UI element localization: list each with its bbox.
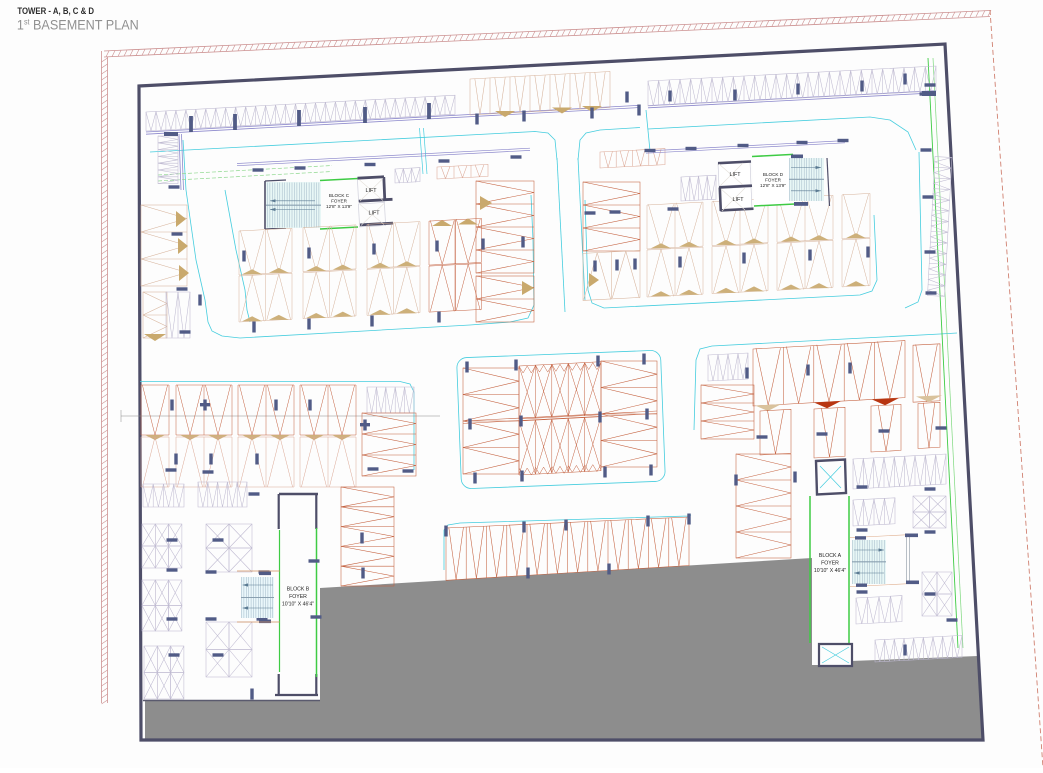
svg-text:1st BASEMENT PLAN: 1st BASEMENT PLAN (17, 17, 139, 33)
svg-text:FOYER: FOYER (289, 594, 307, 600)
svg-text:BLOCK B: BLOCK B (287, 587, 310, 593)
svg-text:FOYER: FOYER (331, 199, 348, 204)
svg-text:FOYER: FOYER (821, 561, 839, 567)
svg-text:LIFT: LIFT (365, 188, 377, 194)
svg-text:12'8" X 13'9": 12'8" X 13'9" (760, 183, 786, 188)
svg-text:FOYER: FOYER (765, 178, 782, 183)
svg-text:BLOCK A: BLOCK A (819, 553, 842, 559)
svg-text:LIFT: LIFT (732, 197, 744, 203)
svg-text:10'10" X 46'4": 10'10" X 46'4" (814, 568, 846, 574)
svg-text:BLOCK C: BLOCK C (329, 193, 350, 198)
svg-text:10'10" X 46'4": 10'10" X 46'4" (282, 602, 314, 608)
svg-text:LIFT: LIFT (368, 211, 380, 217)
svg-text:LIFT: LIFT (729, 172, 741, 178)
svg-text:12'8" X 13'9": 12'8" X 13'9" (326, 204, 352, 209)
svg-text:TOWER - A, B, C & D: TOWER - A, B, C & D (17, 5, 94, 16)
svg-text:BLOCK D: BLOCK D (763, 172, 784, 177)
